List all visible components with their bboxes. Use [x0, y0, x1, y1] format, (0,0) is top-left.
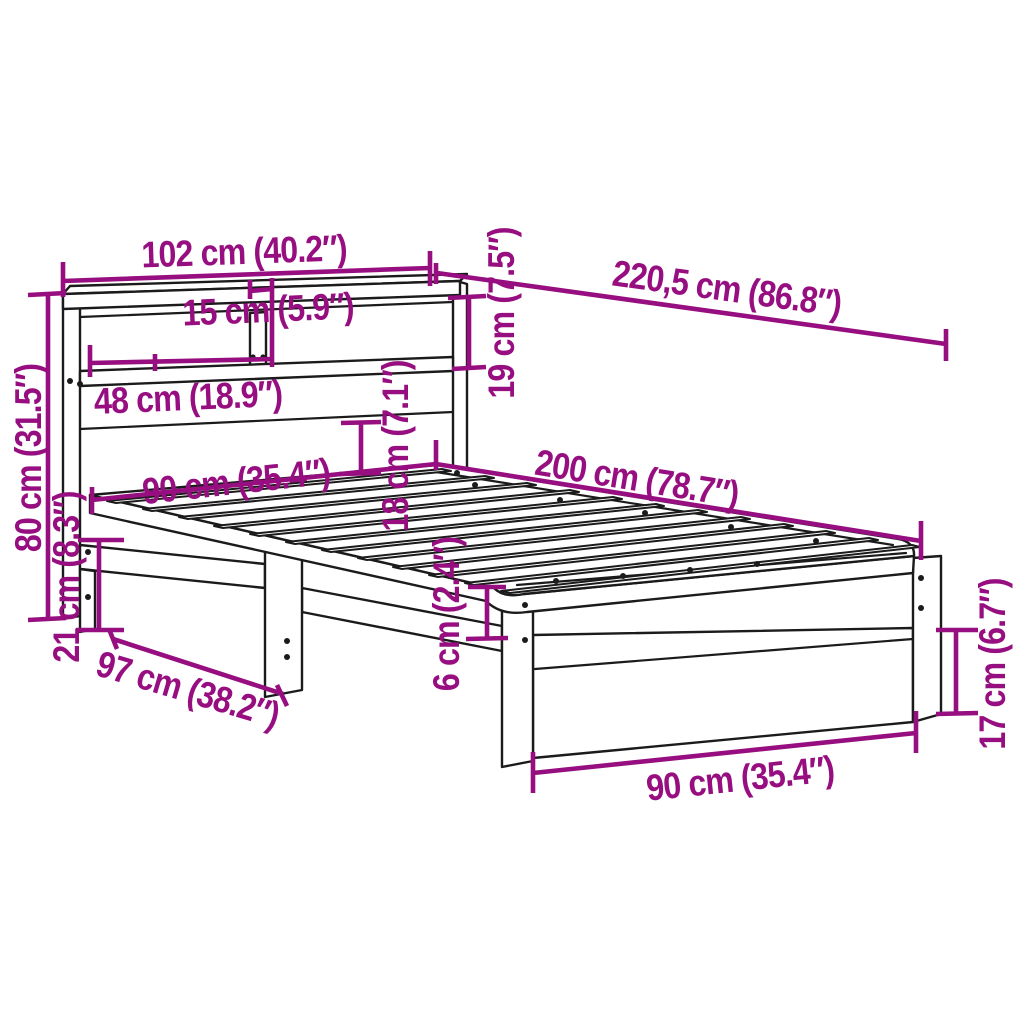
front-left-leg — [265, 545, 302, 697]
dim-shelf-height-label: 19 cm (7.5″) — [482, 227, 523, 398]
dim-compartment-width-label: 48 cm (18.9″) — [93, 374, 283, 423]
dim-base-depth-label: 97 cm (38.2″) — [92, 644, 284, 736]
dim-base-depth: 97 cm (38.2″) — [92, 629, 287, 736]
bed-dimension-diagram: 102 cm (40.2″) 15 cm (5.9″) 220,5 cm (86… — [0, 0, 1024, 1024]
foot-far-leg — [913, 556, 941, 722]
dim-leg-height-label: 17 cm (6.7″) — [973, 578, 1014, 749]
dim-rail-height-label: 21 cm (8.3″) — [47, 491, 88, 662]
dim-headboard-width-label: 102 cm (40.2″) — [141, 228, 348, 276]
dim-panel-height-label: 18 cm (7.1″) — [376, 360, 417, 531]
foot-near-leg — [502, 592, 533, 767]
dim-shelf-depth-label: 15 cm (5.9″) — [182, 286, 355, 334]
head-side-rail — [80, 545, 265, 588]
dim-headboard-height-label: 80 cm (31.5″) — [9, 364, 50, 552]
dim-slat-clearance-label: 6 cm (2.4″) — [427, 537, 468, 691]
diagram-canvas: 102 cm (40.2″) 15 cm (5.9″) 220,5 cm (86… — [0, 0, 1024, 1024]
headboard-right-wall — [453, 280, 467, 471]
dim-leg-height: 17 cm (6.7″) — [936, 578, 1013, 749]
